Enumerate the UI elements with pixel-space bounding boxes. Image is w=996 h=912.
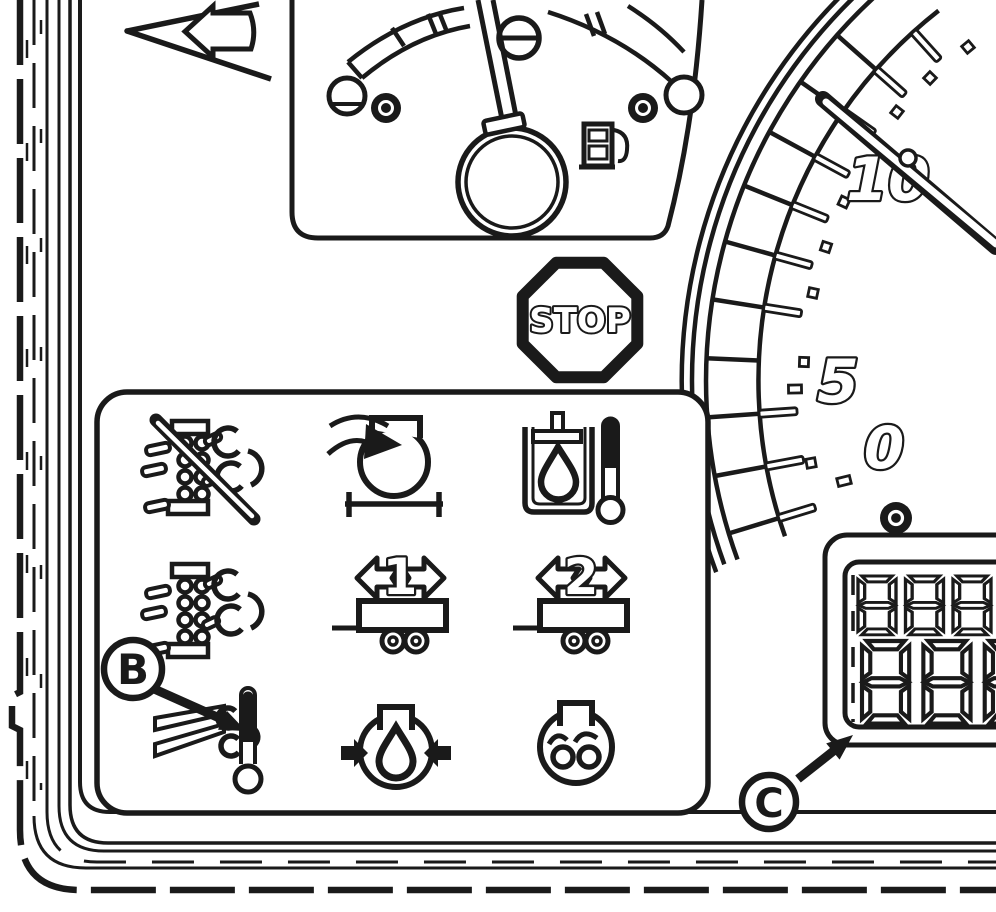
tachometer-dial: 10 5 0	[682, 0, 996, 572]
tach-label-0: 0	[864, 414, 904, 482]
trailer-1-number: 1	[383, 548, 418, 606]
warning-icon-panel: 1 2	[97, 392, 708, 813]
callout-c: C	[742, 735, 853, 829]
tachometer-scale-numbers: 10 5 0	[817, 145, 930, 482]
stop-sign: STOP	[523, 263, 638, 378]
lcd-odometer-display	[825, 535, 996, 745]
fuel-gauge	[292, 0, 702, 238]
diagram-canvas: 10 5 0 STOP	[0, 0, 996, 912]
lcd-digit-8	[985, 641, 996, 724]
trailer-2-number: 2	[564, 548, 599, 606]
callout-c-label: C	[754, 781, 783, 827]
tach-label-5: 5	[817, 347, 859, 417]
stop-sign-label: STOP	[529, 301, 631, 341]
callout-b-label: B	[117, 645, 149, 694]
turn-signal-arrow-icon	[127, 4, 271, 79]
indicator-lamp-bottom-icon	[880, 502, 912, 534]
instrument-cluster-diagram: 10 5 0 STOP	[0, 0, 996, 912]
